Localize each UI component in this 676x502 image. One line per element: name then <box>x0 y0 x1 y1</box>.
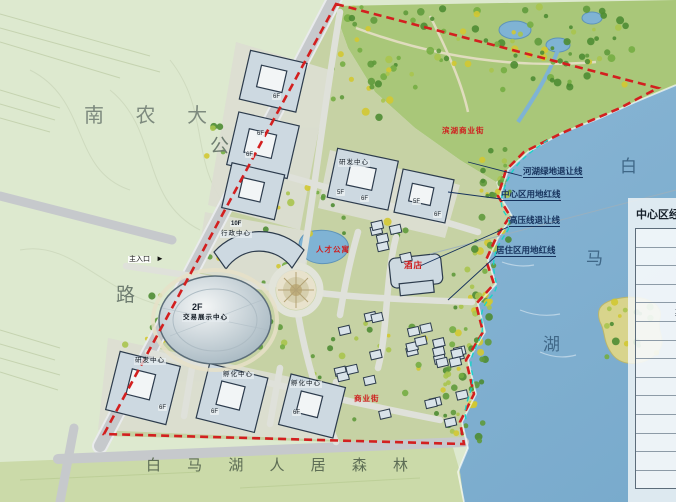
expo-floors-tag: 2F <box>192 303 203 312</box>
panel-row: 地上建筑面积 <box>636 284 676 303</box>
setback-label-center-redline: 中心区用地红线 <box>501 190 561 201</box>
setback-label-powerline: 高压线退让线 <box>509 216 560 227</box>
forest-strip-label: 白 马 湖 人 居 森 林 <box>146 458 419 473</box>
setback-label-residential-redline: 居住区用地红线 <box>496 246 556 257</box>
panel-row: 名称 <box>636 229 676 247</box>
incubator1-label: 孵化中心 <box>222 372 254 379</box>
panel-row: 其中：行政中心 <box>636 302 676 321</box>
panel-row: 总建筑面积 <box>636 265 676 284</box>
panel-row: 研发中心 <box>636 340 676 359</box>
rnd-south-label: 研发中心 <box>134 358 166 365</box>
entrance-arrow-icon: ► <box>156 255 164 263</box>
incubator2-label: 孵化中心 <box>290 381 322 388</box>
panel-row: 容积率 <box>636 414 676 433</box>
panel-row: 孵化中心 <box>636 377 676 396</box>
road-name-char-bottom: 路 <box>116 286 135 305</box>
admin-floors-tag: 10F <box>230 221 242 227</box>
nw-floor-tag-1: 6F <box>256 131 265 137</box>
panel-row: 建筑占地面积 <box>636 395 676 414</box>
panel-row: 酒店 <box>636 358 676 377</box>
university-label: 南 农 大 <box>84 106 220 126</box>
rnd-floor-5f: 5F <box>336 190 345 196</box>
waterfront-street-label: 滨湖商业街 <box>442 127 485 135</box>
masterplan-map: 南 农 大 公 路 白 马 湖 人 居 森 林 白 马 湖 河湖绿地退让线 中心… <box>0 0 676 502</box>
panel-row: 机动车位 <box>636 470 676 489</box>
panel-row: 绿地率 <box>636 451 676 470</box>
nw-floor-tag-2: 6F <box>245 152 254 158</box>
nw-floor-tag-3: 6F <box>272 94 281 100</box>
lake-name-char-1: 白 <box>620 158 637 175</box>
indicator-table: 名称规划总用地总建筑面积地上建筑面积其中：行政中心交易展示中心研发中心酒店孵化中… <box>635 228 676 489</box>
panel-row: 规划总用地 <box>636 247 676 266</box>
rnd-center-label: 研发中心 <box>338 160 370 167</box>
admin-center-label: 行政中心 <box>220 231 252 238</box>
hotel-label: 酒店 <box>404 261 423 270</box>
incubator1-floor: 6F <box>210 409 219 415</box>
lake-name-char-2: 马 <box>586 250 603 267</box>
central-plaza <box>276 270 316 310</box>
rnd-floor-6f: 6F <box>360 196 369 202</box>
road-name-char-top: 公 <box>210 137 229 156</box>
rnd-south-floor: 6F <box>158 405 167 411</box>
office-floor-5f: 5F <box>412 199 421 205</box>
main-entrance-label: 主入口 <box>128 256 151 263</box>
apartments-label: 人才公寓 <box>316 246 350 254</box>
lake-name-char-3: 湖 <box>543 336 560 353</box>
panel-title: 中心区经济技术指标 <box>628 198 676 228</box>
incubator2-floor: 6F <box>292 410 301 416</box>
expo-center-label: 交易展示中心 <box>182 315 229 322</box>
panel-row: 建筑密度 <box>636 433 676 452</box>
office-floor-6f: 6F <box>433 212 442 218</box>
indicator-panel: 中心区经济技术指标 名称规划总用地总建筑面积地上建筑面积其中：行政中心交易展示中… <box>628 198 676 502</box>
setback-label-river-green: 河湖绿地退让线 <box>523 167 583 178</box>
panel-row: 交易展示中心 <box>636 321 676 340</box>
commercial-street-label: 商业街 <box>354 395 380 403</box>
